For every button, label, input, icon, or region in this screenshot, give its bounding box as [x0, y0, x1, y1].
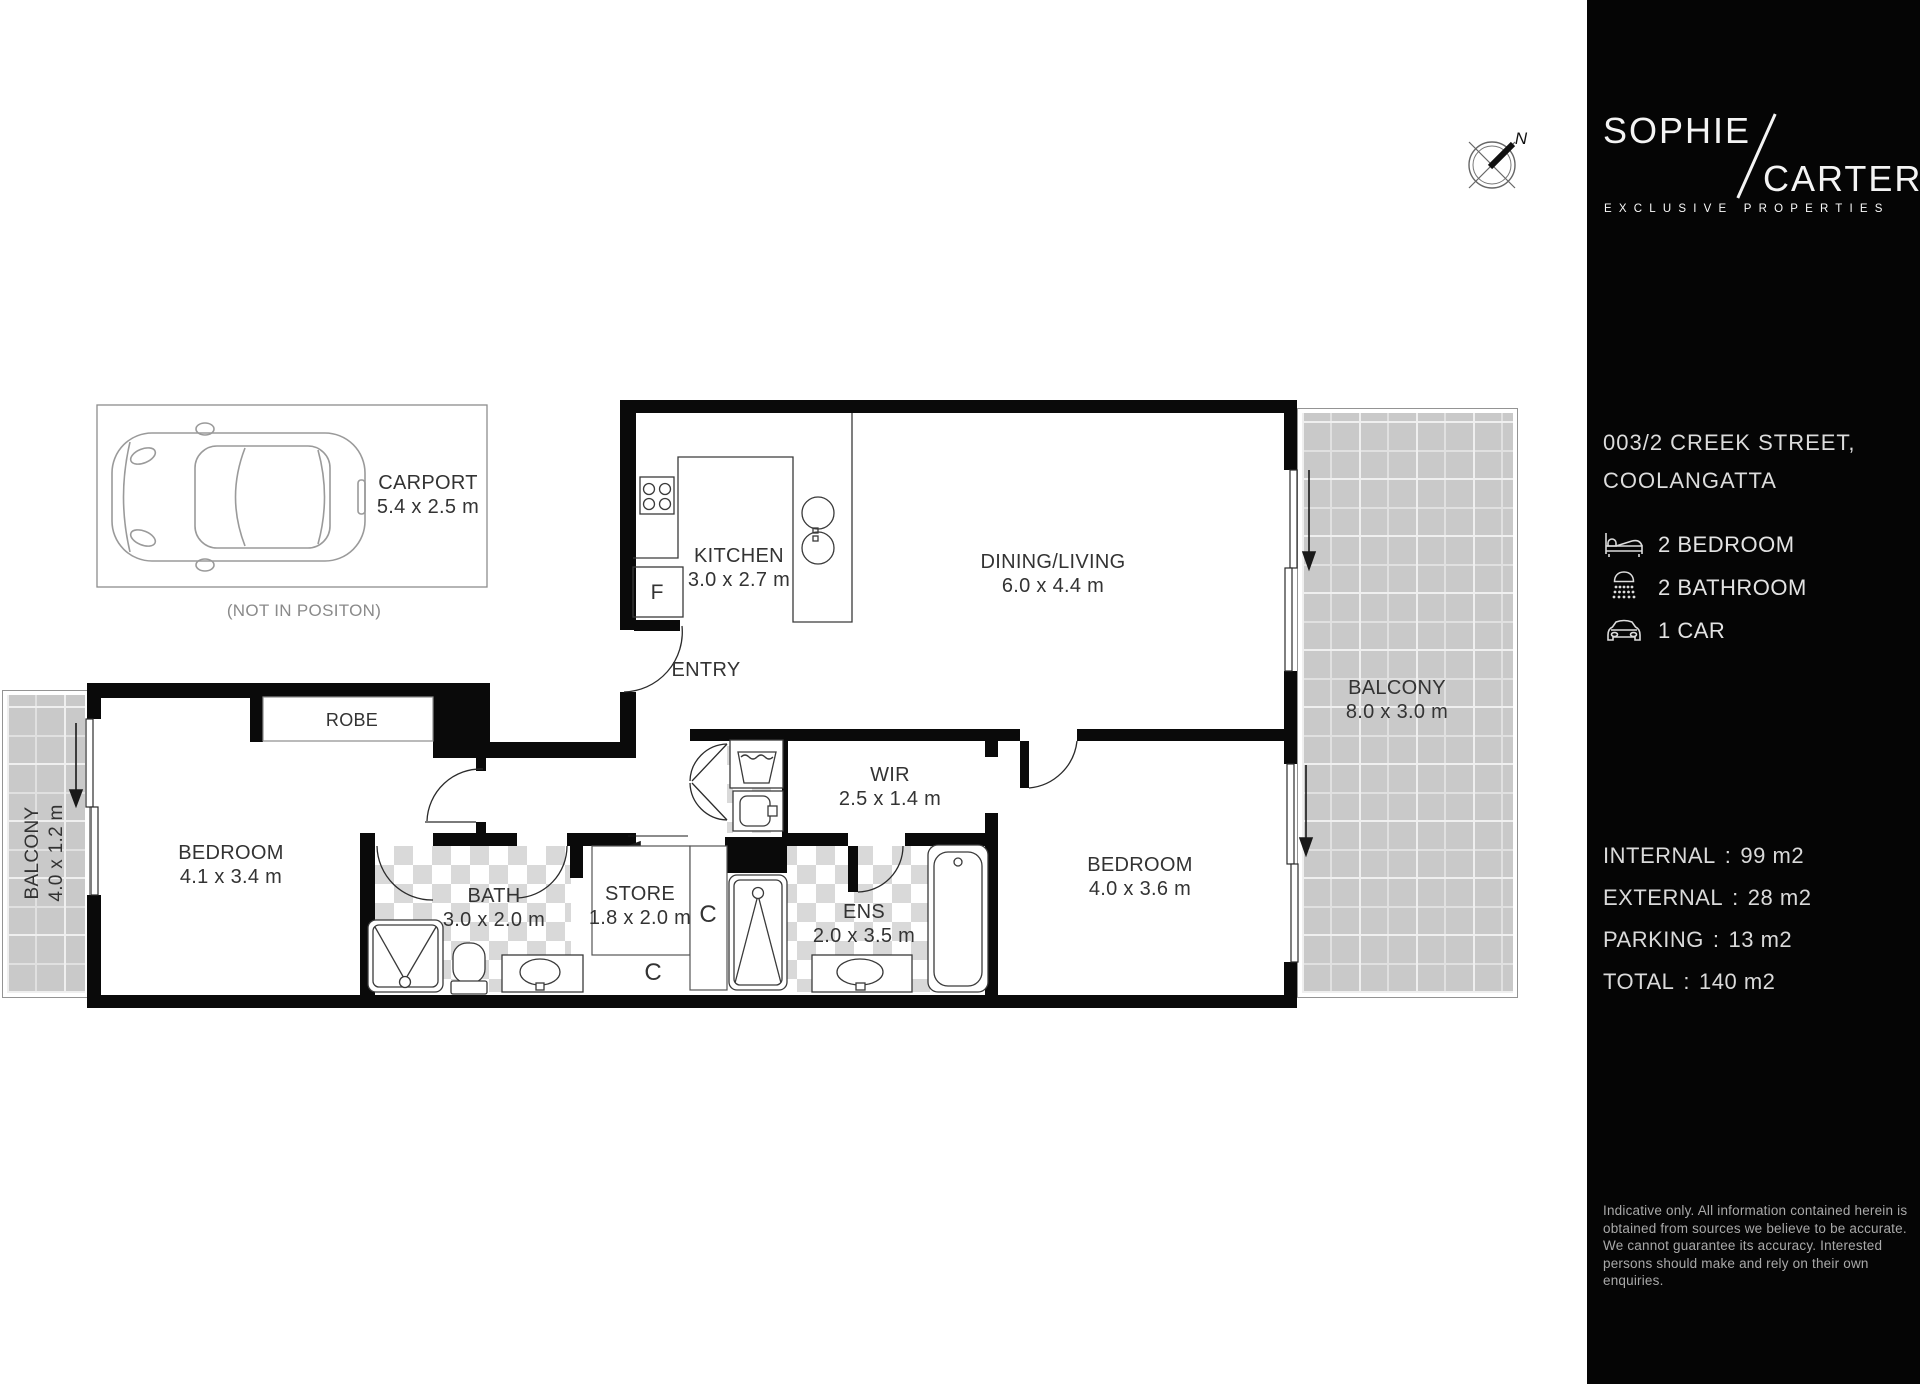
- logo-tagline: EXCLUSIVE PROPERTIES: [1604, 203, 1890, 215]
- agency-logo: SOPHIE CARTER EXCLUSIVE PROPERTIES: [1603, 110, 1905, 210]
- room-label-balcony-right: BALCONY 8.0 x 3.0 m: [1346, 676, 1448, 724]
- logo-line1: SOPHIE: [1603, 110, 1751, 152]
- room-label-wir: WIR 2.5 x 1.4 m: [839, 763, 941, 811]
- area-row-parking: PARKING:13 m2: [1603, 927, 1811, 953]
- carport-note: (NOT IN POSITON): [227, 599, 381, 623]
- info-sidebar: SOPHIE CARTER EXCLUSIVE PROPERTIES 003/2…: [1587, 0, 1920, 1384]
- fridge-label: F: [651, 581, 664, 605]
- shower-icon: [1603, 570, 1645, 606]
- walls: [87, 400, 1297, 1008]
- feature-cars-label: 1 CAR: [1658, 618, 1725, 644]
- carport-dims: 5.4 x 2.5 m: [377, 495, 479, 519]
- property-address: 003/2 CREEK STREET, COOLANGATTA: [1603, 424, 1856, 500]
- cupboard-label-2: C: [644, 959, 661, 987]
- area-summary: INTERNAL:99 m2 EXTERNAL:28 m2 PARKING:13…: [1603, 843, 1811, 995]
- room-label-balcony-left: BALCONY 4.0 x 1.2 m: [21, 804, 69, 901]
- feature-cars: 1 CAR: [1603, 616, 1807, 646]
- room-label-bedroom-2: BEDROOM 4.0 x 3.6 m: [1087, 853, 1192, 901]
- room-label-bedroom-1: BEDROOM 4.1 x 3.4 m: [178, 841, 283, 889]
- feature-bathrooms-label: 2 BATHROOM: [1658, 575, 1807, 601]
- property-features: 2 BEDROOM 2 BATHROOM: [1603, 530, 1807, 646]
- laundry-floor: [727, 742, 782, 833]
- carport-label: CARPORT 5.4 x 2.5 m: [377, 471, 479, 519]
- compass-icon: [1469, 142, 1515, 188]
- car-icon: [1603, 618, 1645, 645]
- cupboard-label-1: C: [699, 901, 716, 929]
- room-label-store: STORE 1.8 x 2.0 m: [589, 882, 691, 930]
- feature-bedrooms: 2 BEDROOM: [1603, 530, 1807, 560]
- floorplan-page: CARPORT 5.4 x 2.5 m (NOT IN POSITON) KIT…: [0, 0, 1920, 1384]
- compass-north-label: N: [1515, 129, 1527, 149]
- bed-icon: [1603, 531, 1645, 559]
- room-label-ens: ENS 2.0 x 3.5 m: [813, 900, 915, 948]
- area-row-external: EXTERNAL:28 m2: [1603, 885, 1811, 911]
- room-label-entry: ENTRY: [672, 658, 741, 682]
- feature-bedrooms-label: 2 BEDROOM: [1658, 532, 1795, 558]
- room-label-kitchen: KITCHEN 3.0 x 2.7 m: [688, 544, 790, 592]
- address-line1: 003/2 CREEK STREET,: [1603, 424, 1856, 462]
- feature-bathrooms: 2 BATHROOM: [1603, 573, 1807, 603]
- room-label-dining-living: DINING/LIVING 6.0 x 4.4 m: [980, 550, 1125, 598]
- car-icon: [112, 423, 365, 571]
- area-row-internal: INTERNAL:99 m2: [1603, 843, 1811, 869]
- address-line2: COOLANGATTA: [1603, 462, 1856, 500]
- area-row-total: TOTAL:140 m2: [1603, 969, 1811, 995]
- carport-name: CARPORT: [377, 471, 479, 495]
- room-label-bath: BATH 3.0 x 2.0 m: [443, 884, 545, 932]
- room-label-robe: ROBE: [326, 708, 378, 732]
- logo-line2: CARTER: [1763, 158, 1920, 200]
- disclaimer-text: Indicative only. All information contain…: [1603, 1202, 1911, 1290]
